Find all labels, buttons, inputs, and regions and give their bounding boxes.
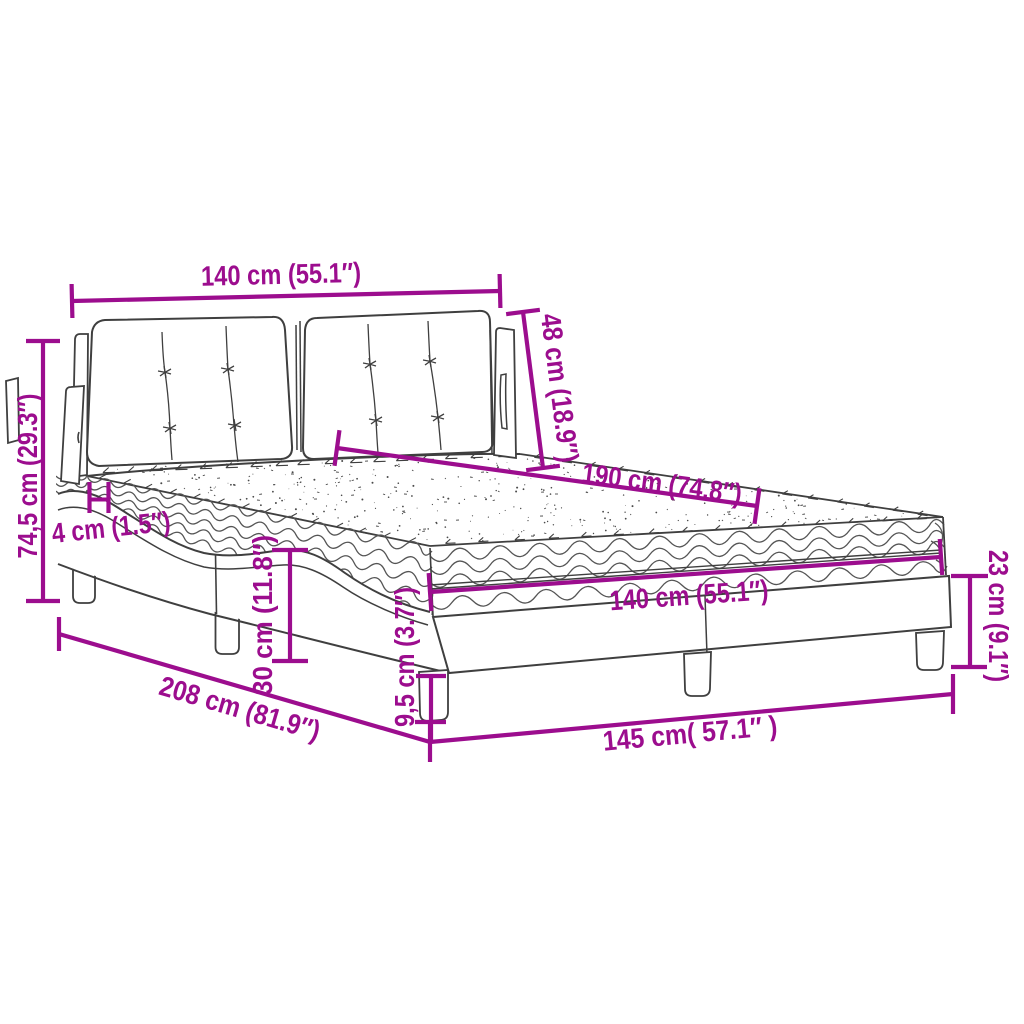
svg-text:30 cm (11.8″): 30 cm (11.8″) bbox=[247, 535, 278, 695]
svg-text:74,5 cm (29.3″): 74,5 cm (29.3″) bbox=[12, 394, 43, 559]
svg-text:23 cm (9.1″): 23 cm (9.1″) bbox=[983, 550, 1014, 682]
svg-text:9,5 cm (3.7″): 9,5 cm (3.7″) bbox=[389, 587, 420, 727]
svg-text:140 cm (55.1″): 140 cm (55.1″) bbox=[201, 257, 362, 292]
